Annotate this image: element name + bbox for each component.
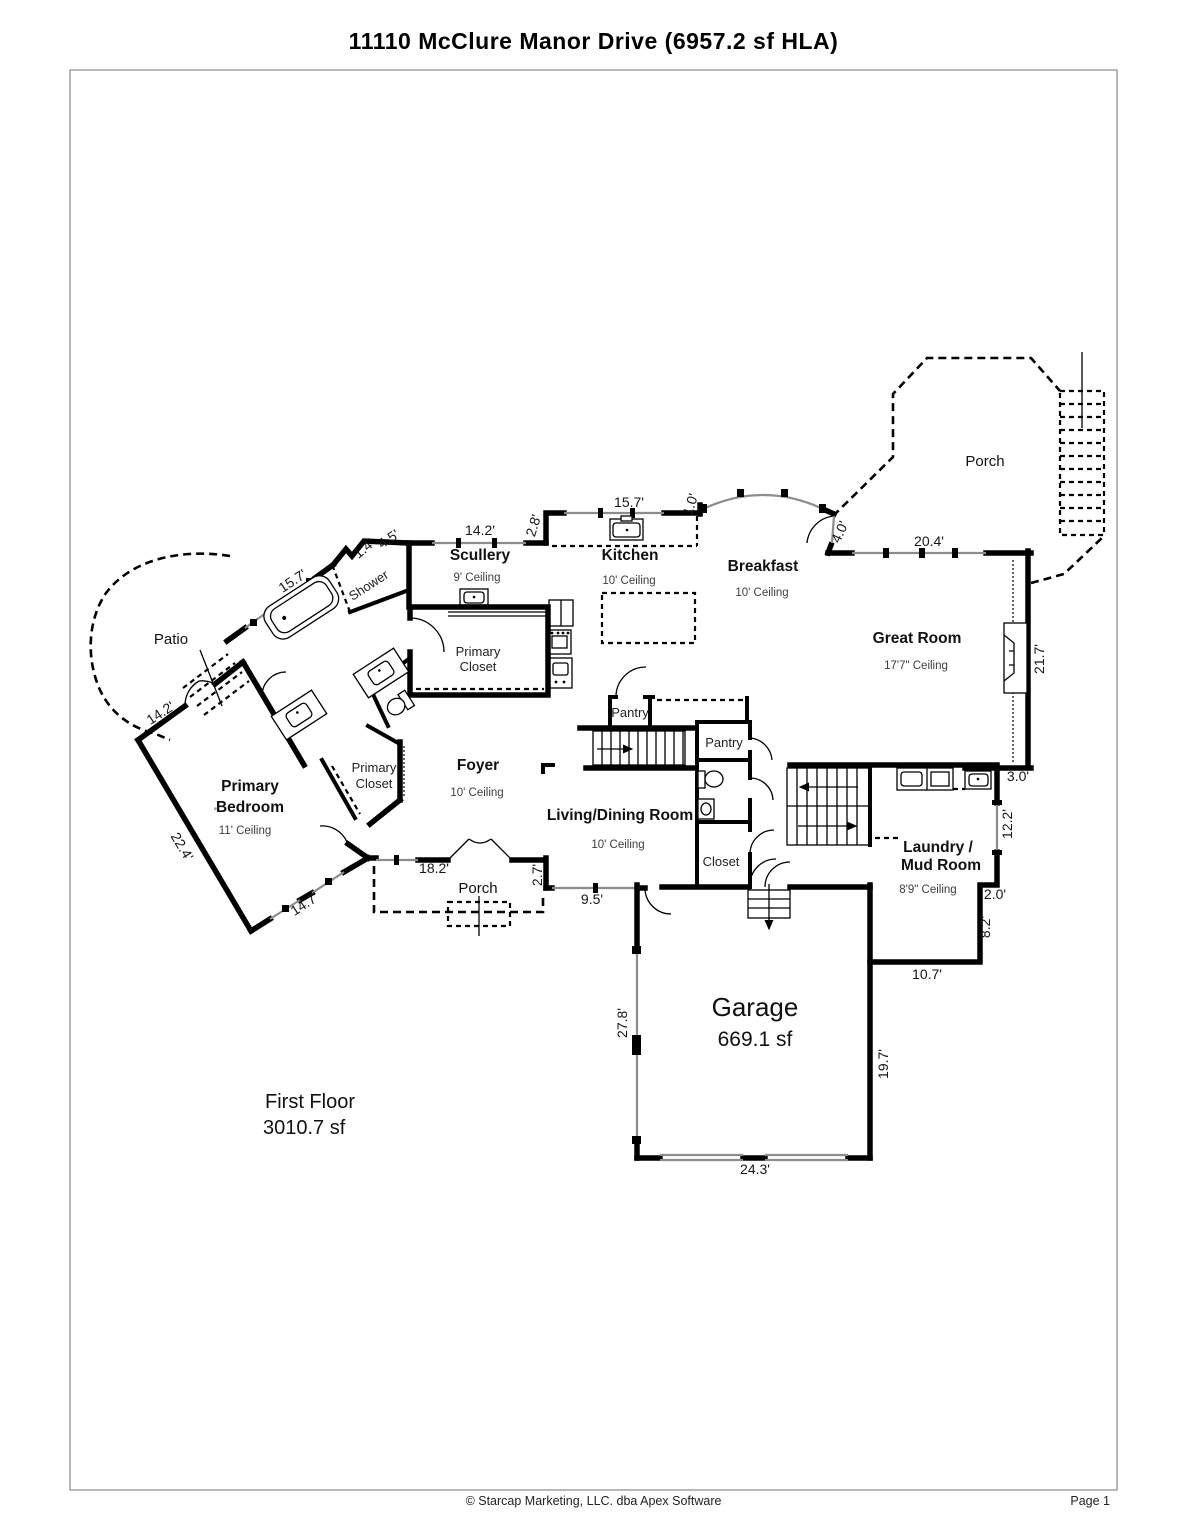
primary-closet-lower: Primary Closet xyxy=(320,726,404,858)
floor-summary: First Floor 3010.7 sf xyxy=(263,1091,355,1139)
room-ceiling-living-dining: 10' Ceiling xyxy=(591,839,644,851)
foyer: Foyer 10' Ceiling xyxy=(450,757,553,799)
garage-steps xyxy=(748,884,790,929)
room-label-primary-closet-lower-1: Primary xyxy=(352,760,397,775)
lower-porch: Porch xyxy=(368,839,546,936)
room-label-great-room: Great Room xyxy=(873,630,962,647)
room-label-garage: Garage xyxy=(712,992,799,1022)
dimensions: 14.2' 15.7' 2.8' 1.0' 4.0' 20.4' 21.7' 3… xyxy=(143,491,1047,1177)
dim-great-top: 20.4' xyxy=(914,533,944,549)
room-label-laundry-1: Laundry / xyxy=(903,839,973,856)
dim-laundry-lower-right: 8.2' xyxy=(977,916,993,938)
stairs-main xyxy=(580,728,695,768)
room-label-primary-closet-upper-2: Closet xyxy=(460,659,497,674)
kitchen-appliances xyxy=(548,600,573,688)
dim-laundry-jog: 2.0' xyxy=(984,886,1006,902)
great-room: Great Room 17'7" Ceiling xyxy=(790,548,1031,768)
footer-copyright: © Starcap Marketing, LLC. dba Apex Softw… xyxy=(0,1494,1187,1508)
pantry-upper-room: Pantry xyxy=(610,667,653,728)
laundry-hall-door-arc xyxy=(765,862,790,887)
powder-toilet xyxy=(698,771,723,788)
room-label-primary-closet-upper-1: Primary xyxy=(456,644,501,659)
floor-area: 3010.7 sf xyxy=(263,1117,346,1139)
room-label-upper-porch: Porch xyxy=(965,453,1004,470)
dim-laundry-offset: 3.0' xyxy=(1007,768,1029,784)
room-label-primary-closet-lower-2: Closet xyxy=(356,776,393,791)
pantry-door-arc xyxy=(616,667,646,695)
garage: Garage 669.1 sf xyxy=(632,884,870,1160)
room-ceiling-foyer: 10' Ceiling xyxy=(450,787,503,799)
scullery: Scullery 9' Ceiling xyxy=(408,538,546,605)
patio-door-arc-1 xyxy=(185,681,199,706)
floor-name: First Floor xyxy=(265,1091,355,1113)
bath-wing: Shower xyxy=(227,541,414,765)
pantry-lower-room: Pantry xyxy=(697,698,772,768)
room-ceiling-great-room: 17'7" Ceiling xyxy=(884,660,948,672)
room-label-patio: Patio xyxy=(154,631,188,648)
room-label-primary-bedroom-1: Primary xyxy=(221,778,279,795)
room-label-lower-porch: Porch xyxy=(458,880,497,897)
dim-living-bottom: 9.5' xyxy=(581,891,603,907)
room-label-scullery: Scullery xyxy=(450,547,511,564)
dim-shower-wall: 4.5' xyxy=(375,526,402,551)
garage-door-arc xyxy=(645,888,671,914)
dim-porch-width: 18.2' xyxy=(419,860,449,876)
footer-page-number: Page 1 xyxy=(1070,1494,1110,1508)
dim-laundry-bottom: 10.7' xyxy=(912,966,942,982)
bedroom-door-arc xyxy=(320,826,347,842)
room-label-laundry-2: Mud Room xyxy=(901,857,981,874)
dim-porch-jog: 2.7' xyxy=(529,864,545,886)
room-label-pantry-upper: Pantry xyxy=(611,705,649,720)
dim-garage-left: 27.8' xyxy=(614,1008,630,1038)
pantry-lower-door-arc xyxy=(750,738,772,760)
kitchen: Kitchen 10' Ceiling xyxy=(546,508,700,688)
upper-porch: Porch xyxy=(833,352,1104,583)
bath-vanity-2 xyxy=(353,648,409,698)
laundry-mud-room: Laundry / Mud Room 8'9" Ceiling xyxy=(787,765,1002,962)
powder-door-arc xyxy=(750,778,773,800)
dim-laundry-right: 12.2' xyxy=(999,809,1015,839)
powder-room xyxy=(697,768,773,887)
kitchen-island xyxy=(602,593,695,643)
fireplace xyxy=(1004,623,1027,693)
room-label-pantry-lower: Pantry xyxy=(705,735,743,750)
room-label-kitchen: Kitchen xyxy=(602,547,659,564)
dim-bedroom-south: 14.7' xyxy=(287,889,321,919)
room-label-living-dining: Living/Dining Room xyxy=(547,807,693,824)
hall-closet-room: Closet xyxy=(703,822,774,887)
mudroom-garage-door-arc xyxy=(750,859,776,885)
room-label-hall-closet: Closet xyxy=(703,854,740,869)
powder-sink xyxy=(698,799,714,819)
primary-closet-upper: Primary Closet xyxy=(410,607,548,695)
dim-kitchen-top: 15.7' xyxy=(614,494,644,510)
laundry-stairs xyxy=(787,765,898,845)
scullery-sink-icon xyxy=(460,589,488,605)
entry-french-door xyxy=(448,839,512,860)
dim-breakfast-door: 4.0' xyxy=(828,518,852,545)
hall-closet-door-arc xyxy=(750,830,774,854)
floorplan-page: 11110 McClure Manor Drive (6957.2 sf HLA… xyxy=(0,0,1187,1536)
room-label-primary-bedroom-2: Bedroom xyxy=(216,799,284,816)
room-ceiling-primary-bedroom: 11' Ceiling xyxy=(219,825,272,837)
dim-great-right: 21.7' xyxy=(1031,644,1047,674)
dim-scullery-top: 14.2' xyxy=(465,522,495,538)
floorplan-canvas: Porch Great Room 17'7" Ceiling xyxy=(0,0,1187,1536)
laundry-sink-icon xyxy=(965,771,991,789)
bedroom-mark: " xyxy=(214,807,218,819)
dim-kitchen-jog: 2.8' xyxy=(522,512,544,538)
room-ceiling-breakfast: 10' Ceiling xyxy=(735,587,788,599)
living-dining: Living/Dining Room 10' Ceiling xyxy=(547,807,693,851)
washer-dryer xyxy=(897,768,953,790)
room-label-foyer: Foyer xyxy=(457,757,499,774)
dim-garage-right: 19.7' xyxy=(875,1049,891,1079)
room-ceiling-kitchen: 10' Ceiling xyxy=(602,575,655,587)
breakfast-nook: Breakfast 10' Ceiling xyxy=(657,489,834,700)
garage-area: 669.1 sf xyxy=(718,1028,793,1051)
closet-door-arc xyxy=(410,618,444,652)
room-label-breakfast: Breakfast xyxy=(728,558,799,575)
room-ceiling-scullery: 9' Ceiling xyxy=(454,572,501,584)
primary-bedroom: Primary Bedroom " 11' Ceiling xyxy=(138,662,368,931)
dim-garage-bottom: 24.3' xyxy=(740,1161,770,1177)
bath-door-arc xyxy=(262,672,286,695)
kitchen-sink-icon xyxy=(610,516,643,540)
room-ceiling-laundry: 8'9" Ceiling xyxy=(899,884,956,896)
bath-vanity-1 xyxy=(271,690,327,740)
